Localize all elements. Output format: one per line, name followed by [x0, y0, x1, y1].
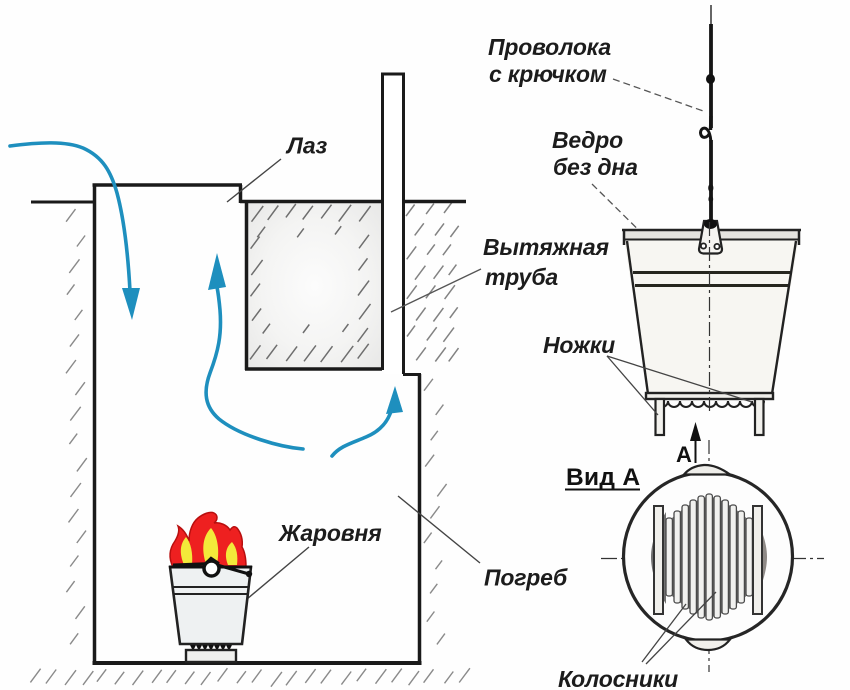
svg-text:Ножки: Ножки — [543, 332, 615, 358]
svg-text:труба: труба — [485, 264, 558, 290]
svg-text:Лаз: Лаз — [285, 133, 327, 159]
svg-text:Жаровня: Жаровня — [278, 520, 382, 546]
svg-text:Вытяжная: Вытяжная — [483, 234, 609, 260]
svg-text:Колосники: Колосники — [558, 666, 678, 690]
svg-text:Проволока: Проволока — [488, 34, 611, 60]
svg-text:без дна: без дна — [553, 154, 638, 180]
svg-text:Ведро: Ведро — [552, 127, 623, 153]
svg-text:Погреб: Погреб — [484, 565, 568, 591]
svg-text:с крючком: с крючком — [489, 61, 607, 87]
svg-text:Вид А: Вид А — [566, 464, 640, 491]
svg-text:А: А — [676, 442, 692, 467]
